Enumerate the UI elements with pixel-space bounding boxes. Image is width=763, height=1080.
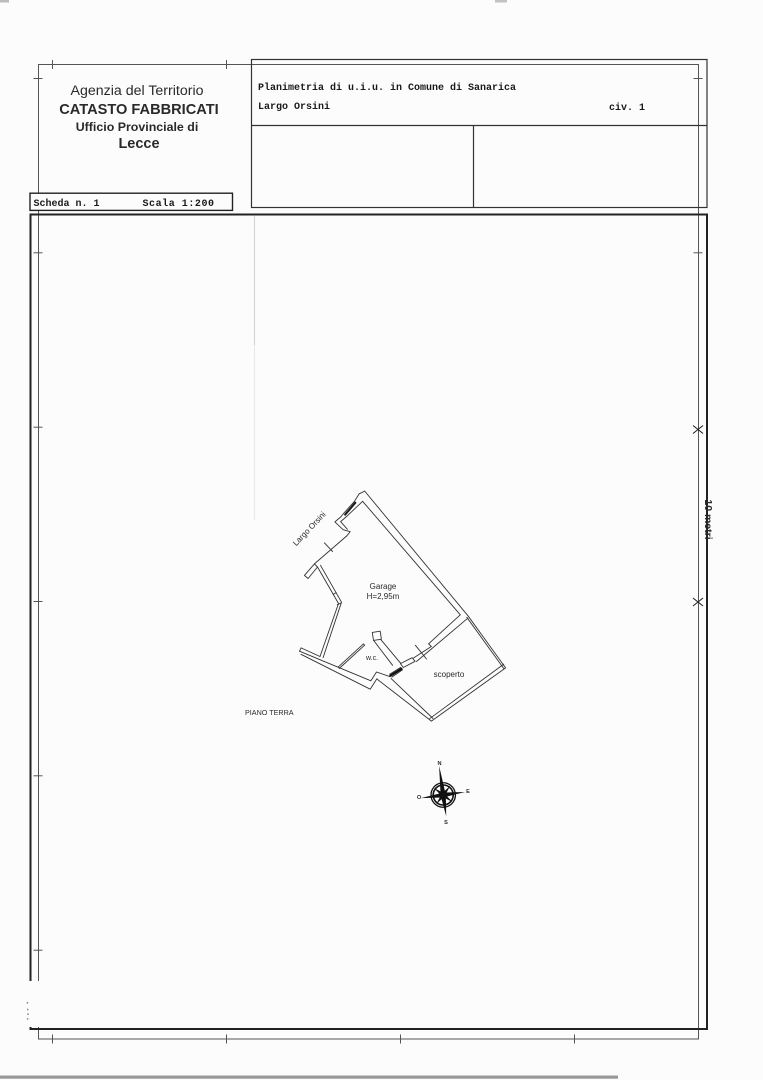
svg-text:Planimetria di u.i.u. in Comun: Planimetria di u.i.u. in Comune di Sanar… bbox=[258, 82, 516, 94]
svg-text:Agenzia del Territorio: Agenzia del Territorio bbox=[70, 83, 203, 99]
svg-text:10 metri: 10 metri bbox=[702, 499, 714, 539]
svg-text:E: E bbox=[466, 789, 470, 795]
svg-text:CATASTO FABBRICATI: CATASTO FABBRICATI bbox=[59, 102, 218, 118]
svg-text:scoperto: scoperto bbox=[434, 670, 465, 679]
svg-text:Largo Orsini: Largo Orsini bbox=[258, 101, 330, 113]
svg-text:Lecce: Lecce bbox=[118, 136, 159, 152]
svg-text:H=2,95m: H=2,95m bbox=[367, 592, 400, 601]
svg-text:Scala 1:200: Scala 1:200 bbox=[143, 198, 215, 210]
svg-text:O: O bbox=[417, 795, 422, 801]
svg-text:N: N bbox=[437, 761, 441, 767]
svg-text:PIANO TERRA: PIANO TERRA bbox=[245, 708, 294, 717]
svg-text:Garage: Garage bbox=[370, 582, 397, 591]
svg-text:w.c.: w.c. bbox=[365, 655, 378, 662]
svg-text:civ. 1: civ. 1 bbox=[609, 102, 645, 114]
svg-text:Scheda n. 1: Scheda n. 1 bbox=[34, 198, 100, 210]
svg-text:Ufficio Provinciale di: Ufficio Provinciale di bbox=[76, 120, 199, 134]
svg-text:Largo Orsini: Largo Orsini bbox=[291, 510, 328, 548]
svg-text:S: S bbox=[444, 820, 448, 826]
